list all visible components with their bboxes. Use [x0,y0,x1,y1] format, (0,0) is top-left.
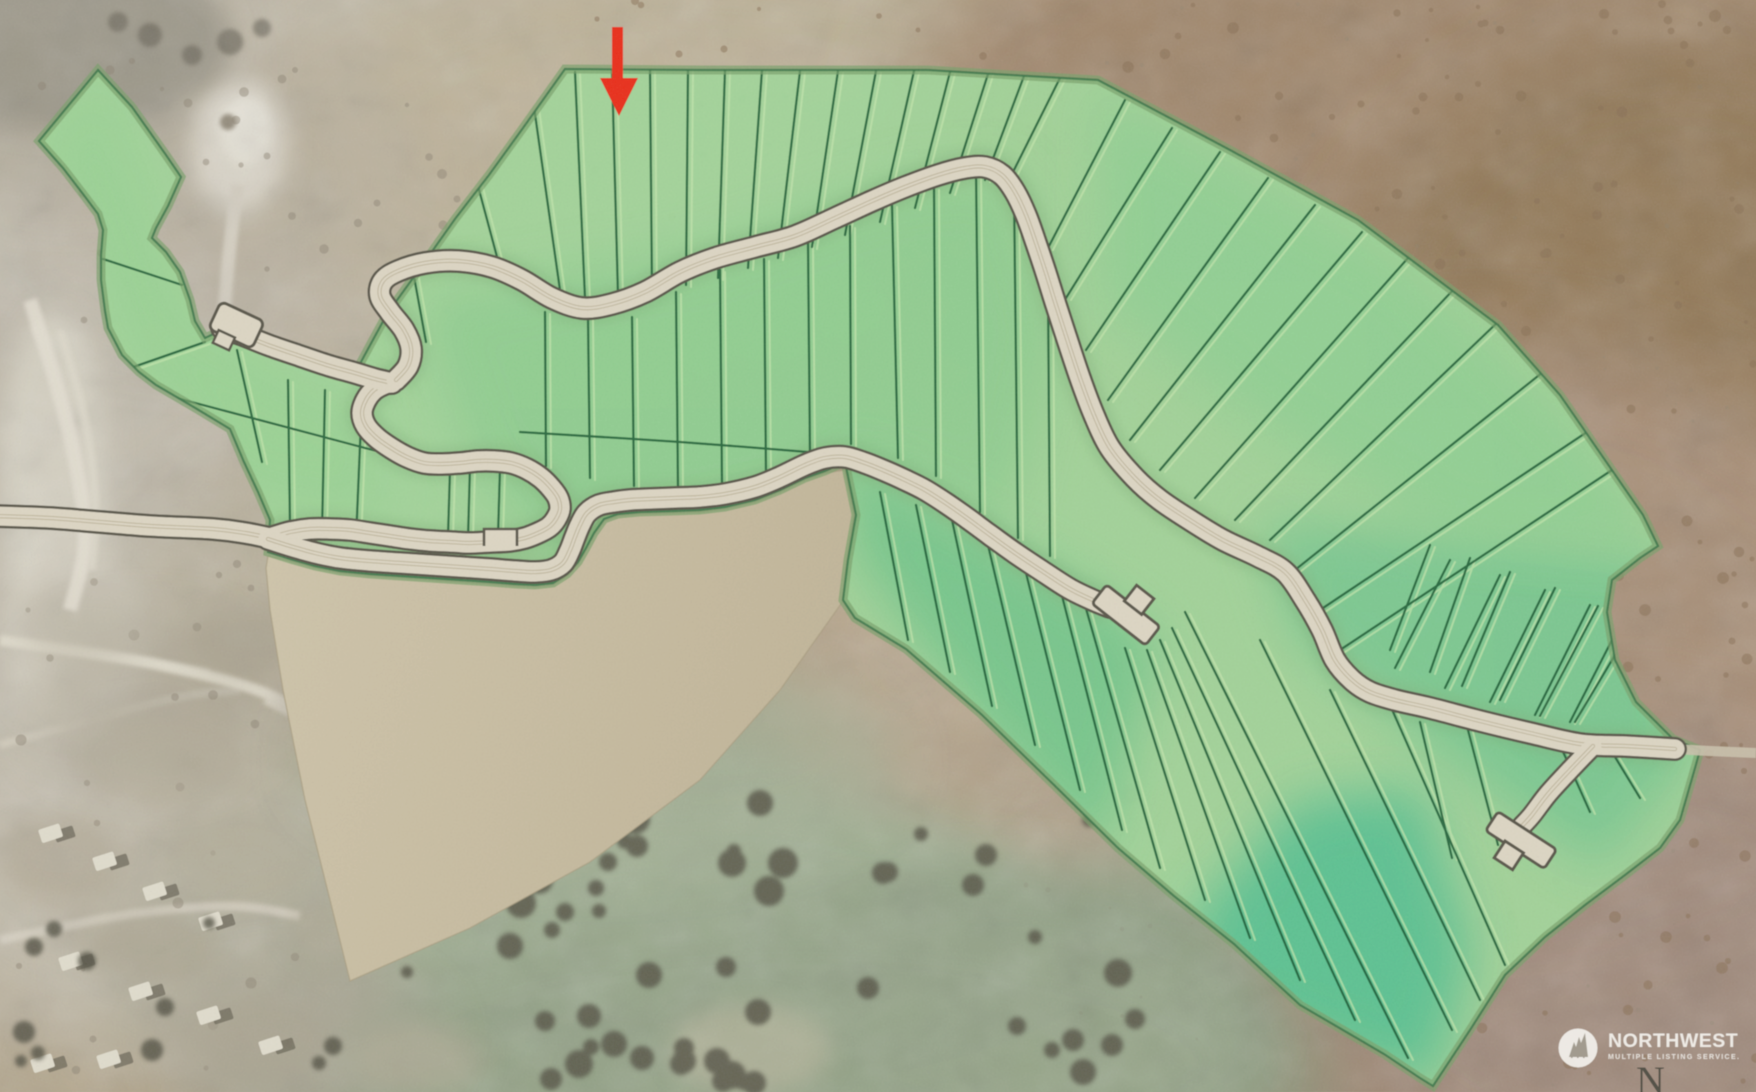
svg-text:NORTHWEST: NORTHWEST [1608,1030,1738,1052]
svg-text:MULTIPLE LISTING SERVICE.: MULTIPLE LISTING SERVICE. [1608,1054,1740,1061]
svg-text:N: N [1636,1058,1665,1092]
